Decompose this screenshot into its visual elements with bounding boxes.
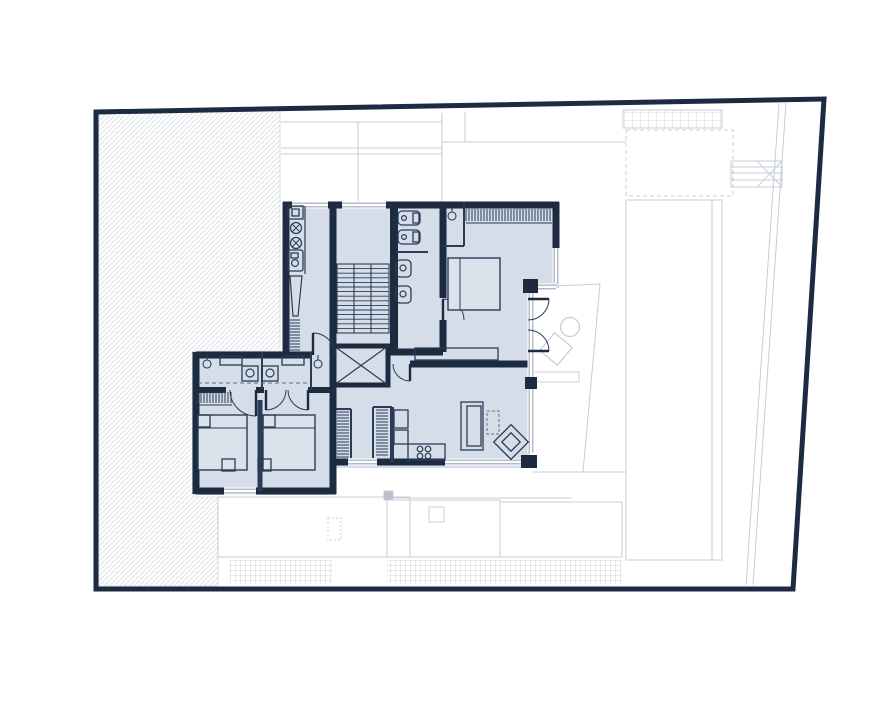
- deck-grid-west: [230, 560, 333, 584]
- terrace-post: [384, 491, 393, 500]
- pergola-grid: [623, 110, 722, 128]
- glass-step-corner: [523, 279, 538, 293]
- floor-plan-drawing: [0, 0, 891, 713]
- terrace-table: [561, 318, 580, 337]
- terrace-bench: [534, 372, 579, 382]
- deck-grid-east: [387, 560, 622, 584]
- bed-1: [448, 258, 500, 310]
- living-south-corner: [521, 455, 537, 468]
- elevator: [334, 346, 388, 385]
- floor-plan-canvas: [0, 0, 891, 713]
- glass-mid-pier: [525, 377, 537, 389]
